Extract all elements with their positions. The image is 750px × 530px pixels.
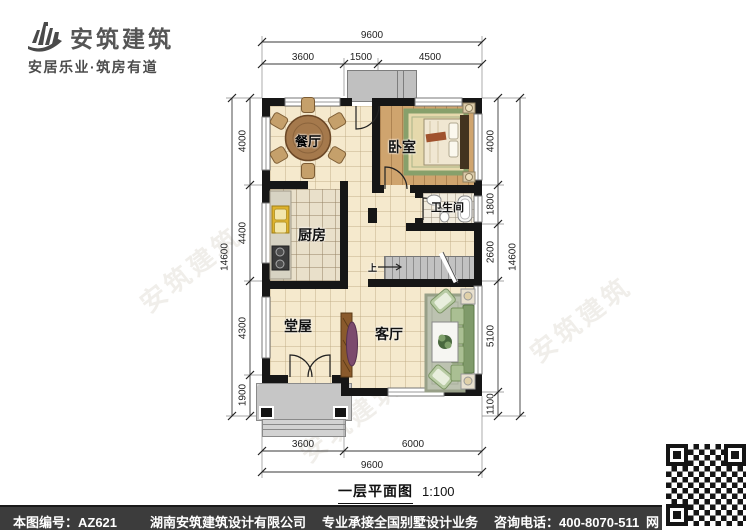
company-name: 安筑建筑 [70,20,174,54]
dim-label: 1100 [486,393,497,415]
footer-company: 湖南安筑建筑设计有限公司 [150,512,306,530]
staircase [384,256,476,281]
dim-label: 3600 [292,439,314,450]
room-label-hall: 堂屋 [284,316,312,336]
watermark-text: 安筑建筑 [131,217,248,320]
dim-label: 4300 [238,317,249,339]
qr-finder-icon [666,444,688,466]
dim-label: 4000 [486,130,497,152]
dim-label: 14600 [220,243,231,271]
dim-label: 2600 [486,241,497,263]
dim-label: 9600 [361,460,383,471]
dim-label: 6000 [402,439,424,450]
porch-column [333,406,348,419]
wall-segment [372,98,380,189]
footer-info: 湖南安筑建筑设计有限公司 专业承接全国别墅设计业务 咨询电话：400-8070-… [150,512,639,530]
dim-label: 1800 [486,193,497,215]
room-label-bathroom: 卫生间 [431,199,464,215]
footer-bar: 本图编号：AZ621 湖南安筑建筑设计有限公司 专业承接全国别墅设计业务 咨询电… [0,505,750,530]
room-label-living: 客厅 [375,324,403,344]
wall-segment [374,98,415,106]
porch-column [259,406,274,419]
wall-segment [474,98,482,114]
wall-segment [262,181,308,189]
wall-segment [341,388,388,396]
qr-finder-icon [724,444,746,466]
wall-segment [340,181,348,289]
wall-segment [474,222,482,286]
wall-segment [262,281,348,289]
wall-segment [410,185,482,193]
plan-code: 本图编号：AZ621 [13,512,117,530]
dim-label: 4400 [238,222,249,244]
stair-up-label: 上 [368,261,377,274]
room-label-bedroom: 卧室 [388,137,416,157]
footer-phone: 咨询电话：400-8070-511 [494,512,639,530]
page: 安筑建筑 安居乐业·筑房有道 安筑建筑 安筑建筑 安筑建筑 安筑建筑 [0,0,750,530]
dim-label: 5100 [486,325,497,347]
wall-segment [372,185,384,193]
footer-service: 专业承接全国别墅设计业务 [322,512,478,530]
company-tagline: 安居乐业·筑房有道 [28,57,158,77]
wall-segment [368,279,474,287]
wall-segment [262,375,288,383]
dim-label: 1900 [238,384,249,406]
dim-label: 3600 [292,52,314,63]
porch-steps [262,419,346,437]
dim-label: 14600 [508,243,519,271]
qr-finder-icon [666,504,688,526]
wall-segment [262,263,270,297]
watermark-text: 安筑建筑 [521,267,638,370]
qr-code [662,440,750,530]
plan-title: 一层平面图 [338,481,413,504]
web-badge: 网 [646,512,659,530]
room-label-dining: 餐厅 [295,131,321,150]
company-logo-icon [26,16,68,54]
dim-label: 9600 [361,30,383,41]
wall-segment [262,98,270,117]
dim-label: 4500 [419,52,441,63]
qr-pattern [666,444,746,526]
room-label-kitchen: 厨房 [298,225,326,245]
plan-title-row: 一层平面图 1:100 [338,481,455,504]
wall-segment [444,388,482,396]
dim-label: 1500 [350,52,372,63]
plan-scale: 1:100 [422,484,455,499]
wall-segment [340,98,352,106]
wall-segment [406,223,482,231]
wall-segment [415,193,423,198]
dim-label: 4000 [238,130,249,152]
wall-segment [368,208,377,223]
